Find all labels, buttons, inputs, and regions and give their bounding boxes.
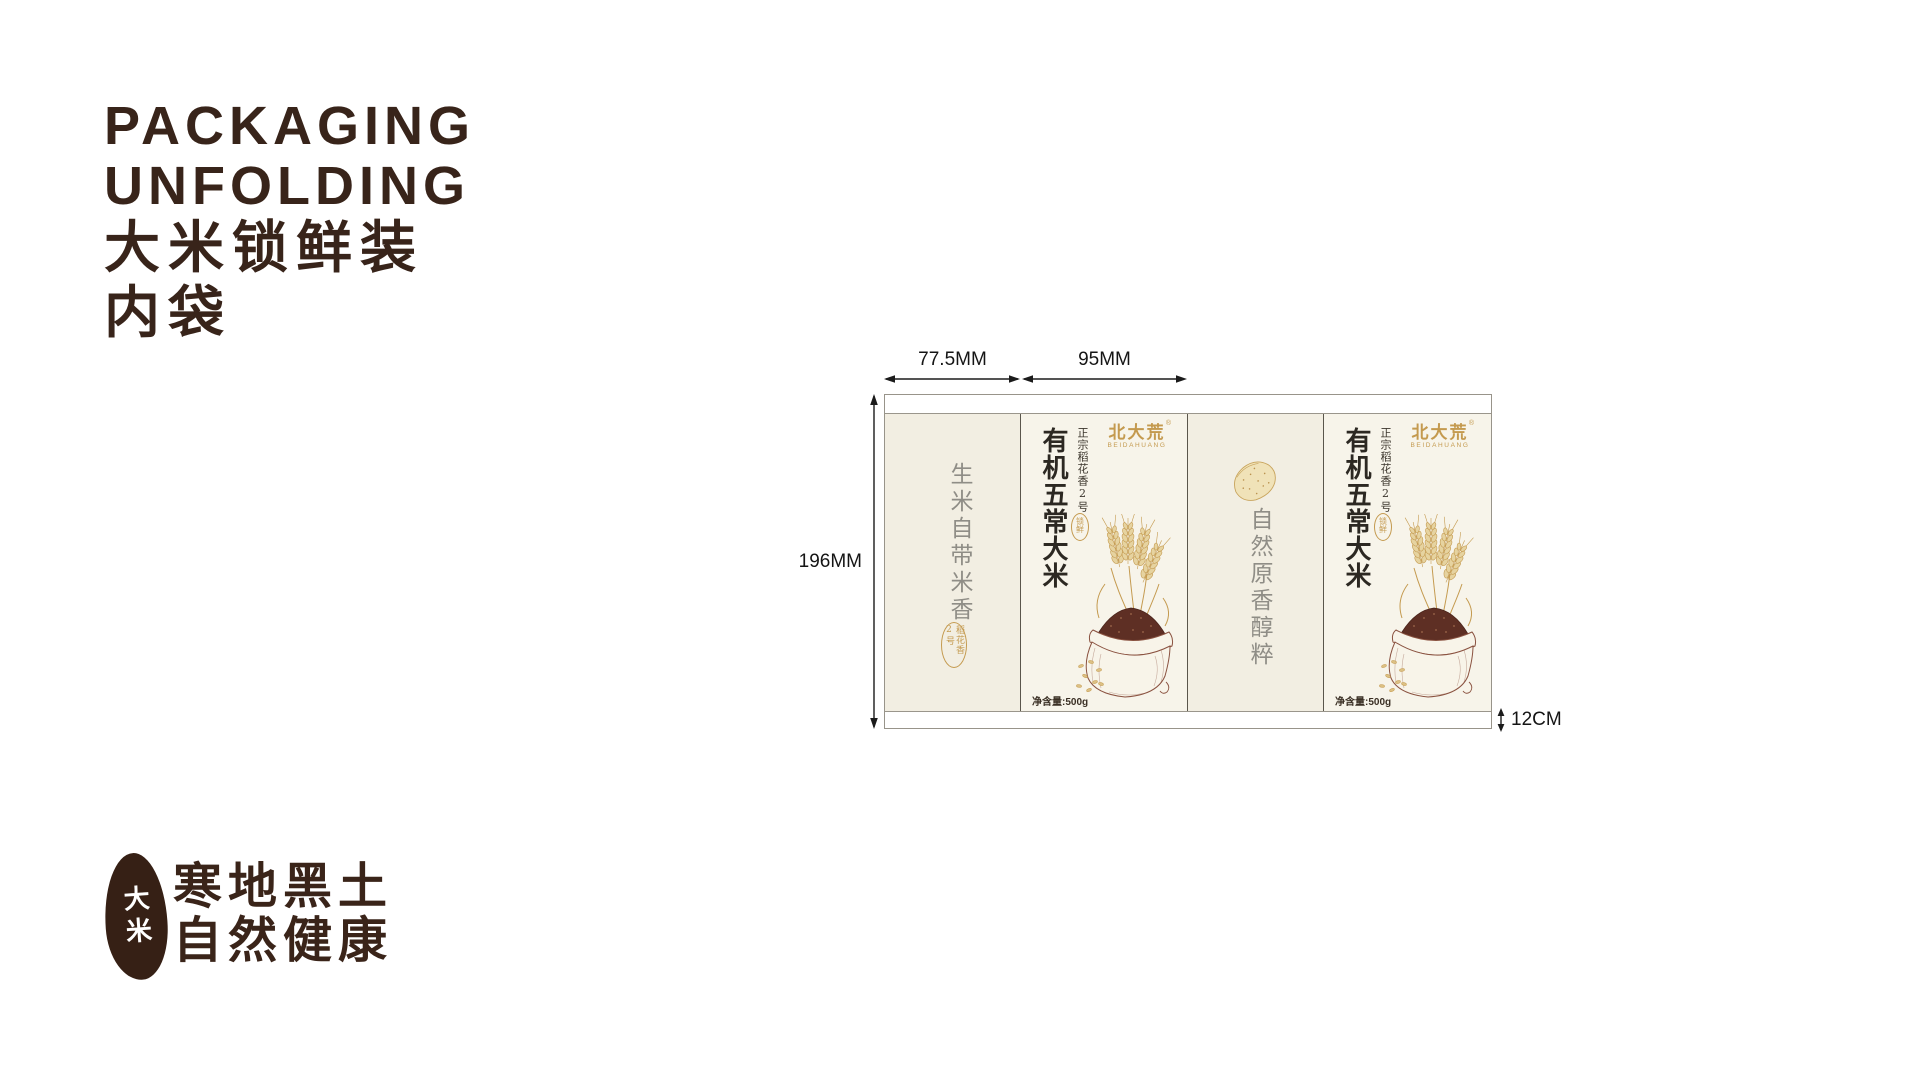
net-weight: 净含量:500g xyxy=(1335,693,1391,708)
vertical-double-arrow-icon xyxy=(1496,707,1506,733)
rice-variety-seal-stamp: 稻花香2号 xyxy=(941,622,967,668)
right-fold-slogan: 自然原香醇粹 xyxy=(1242,507,1276,669)
wheat-and-rice-bag-illustration xyxy=(1073,514,1181,700)
brand-name-cn: 北大荒 xyxy=(1107,424,1167,442)
seal-strip-bottom xyxy=(885,712,1491,728)
brand-name-cn: 北大荒 xyxy=(1410,424,1470,442)
brand-logo: 北大荒 BEIDAHUANG ® xyxy=(1107,424,1167,450)
left-fold-slogan: 生米自带米香 xyxy=(942,462,976,624)
origin-line: 正宗稻花香2号 xyxy=(1074,427,1090,513)
package-outline: 生米自带米香 稻花香2号 有机五常大米 正宗稻花香2号 锁鲜 北大荒 BEIDA… xyxy=(884,394,1492,729)
height-dimension-arrow xyxy=(867,393,881,730)
net-weight: 净含量:500g xyxy=(1032,693,1088,708)
rice-pile-illustration xyxy=(1224,456,1282,506)
title-line-4: 内袋 xyxy=(104,281,475,346)
seal-strip-top xyxy=(885,395,1491,413)
wheat-and-rice-bag-illustration xyxy=(1376,514,1484,700)
panel-right-fold: 自然原香醇粹 xyxy=(1188,414,1324,711)
title-line-1: PACKAGING xyxy=(104,96,475,156)
panel-left-fold: 生米自带米香 稻花香2号 xyxy=(885,414,1021,711)
panel-front-main: 有机五常大米 正宗稻花香2号 锁鲜 北大荒 BEIDAHUANG ® xyxy=(1021,414,1188,711)
dimension-main-panel-width: 95MM xyxy=(1021,349,1188,371)
product-name: 有机五常大米 xyxy=(1338,427,1375,589)
rice-grain-badge-text: 大米 xyxy=(115,883,156,949)
trademark-symbol: ® xyxy=(1469,420,1474,427)
title-block: PACKAGING UNFOLDING 大米锁鲜装 内袋 xyxy=(104,96,475,346)
dimension-front-fold-width: 77.5MM xyxy=(884,349,1021,371)
panel-row: 生米自带米香 稻花香2号 有机五常大米 正宗稻花香2号 锁鲜 北大荒 BEIDA… xyxy=(885,413,1491,712)
brand-name-en: BEIDAHUANG xyxy=(1107,442,1167,450)
product-name: 有机五常大米 xyxy=(1035,427,1072,589)
page: PACKAGING UNFOLDING 大米锁鲜装 内袋 77.5MM 95MM… xyxy=(0,0,1920,1079)
width-dimension-arrow xyxy=(883,372,1189,386)
title-line-2: UNFOLDING xyxy=(104,156,475,216)
dimension-side-depth: 12CM xyxy=(1511,709,1562,731)
footer-slogan-line-1: 寒地黑土 xyxy=(173,860,393,914)
origin-line: 正宗稻花香2号 xyxy=(1377,427,1393,513)
trademark-symbol: ® xyxy=(1166,420,1171,427)
depth-label: 12CM xyxy=(1496,707,1562,733)
footer-slogan: 寒地黑土 自然健康 xyxy=(173,860,393,968)
dimension-bag-height: 196MM xyxy=(786,551,862,573)
rice-grain-badge: 大米 xyxy=(101,851,172,982)
title-line-3: 大米锁鲜装 xyxy=(104,216,475,281)
footer-slogan-line-2: 自然健康 xyxy=(173,914,393,968)
brand-name-en: BEIDAHUANG xyxy=(1410,442,1470,450)
brand-logo: 北大荒 BEIDAHUANG ® xyxy=(1410,424,1470,450)
rice-variety-seal-text: 稻花香2号 xyxy=(944,625,964,665)
panel-back-main: 有机五常大米 正宗稻花香2号 锁鲜 北大荒 BEIDAHUANG ® xyxy=(1324,414,1491,711)
